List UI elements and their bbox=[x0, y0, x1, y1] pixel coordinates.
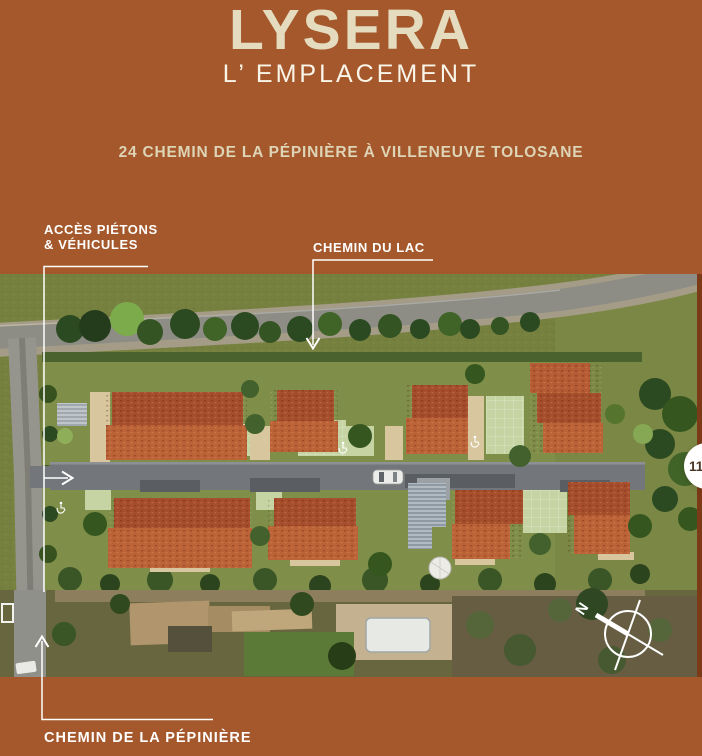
house-bottom-4 bbox=[568, 482, 630, 554]
access-callout-line1: ACCÈS PIÉTONS bbox=[44, 222, 158, 237]
house-top-2 bbox=[270, 390, 338, 452]
aerial-site-plan-image: N bbox=[0, 274, 702, 677]
page-number: 11 bbox=[689, 459, 702, 474]
house-bottom-1 bbox=[108, 498, 252, 568]
page-title: LYSERA bbox=[0, 2, 702, 59]
house-top-1 bbox=[106, 392, 247, 460]
carport bbox=[57, 403, 87, 426]
flyer-page: LYSERA L’ EMPLACEMENT 24 CHEMIN DE LA PÉ… bbox=[0, 0, 702, 756]
existing-neighborhood bbox=[0, 588, 702, 677]
chemin-du-lac-callout: CHEMIN DU LAC bbox=[313, 240, 425, 255]
header: LYSERA L’ EMPLACEMENT bbox=[0, 0, 702, 89]
house-bottom-2 bbox=[268, 498, 358, 560]
access-callout-line2: & VÉHICULES bbox=[44, 237, 158, 252]
house-top-4 bbox=[530, 363, 603, 453]
chemin-de-la-pepiniere-callout: CHEMIN DE LA PÉPINIÈRE bbox=[44, 731, 252, 746]
swimming-pool bbox=[366, 618, 430, 652]
address-line: 24 CHEMIN DE LA PÉPINIÈRE À VILLENEUVE T… bbox=[0, 144, 702, 162]
access-callout: ACCÈS PIÉTONS & VÉHICULES bbox=[44, 222, 158, 252]
house-top-3 bbox=[406, 385, 468, 454]
car-icon bbox=[373, 470, 403, 484]
house-bottom-3 bbox=[452, 490, 523, 559]
central-road bbox=[30, 462, 645, 490]
page-subtitle: L’ EMPLACEMENT bbox=[0, 60, 702, 89]
gazebo-dome bbox=[429, 557, 451, 579]
